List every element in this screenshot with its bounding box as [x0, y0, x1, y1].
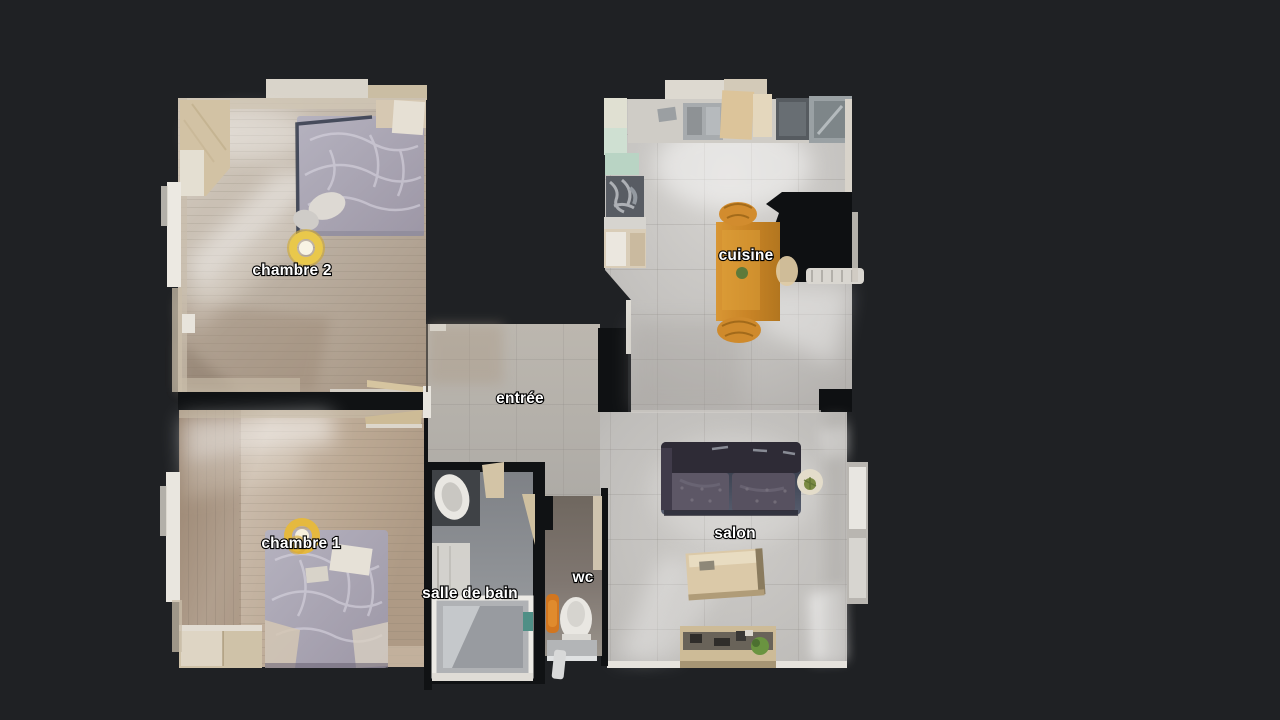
svg-text:entrée: entrée [496, 390, 544, 407]
svg-text:wc: wc [571, 569, 593, 586]
svg-text:salle de bain: salle de bain [422, 585, 518, 602]
svg-text:salon: salon [714, 525, 755, 542]
svg-text:cuisine: cuisine [719, 247, 774, 264]
svg-text:chambre 2: chambre 2 [252, 262, 331, 279]
svg-text:chambre 1: chambre 1 [261, 535, 341, 552]
